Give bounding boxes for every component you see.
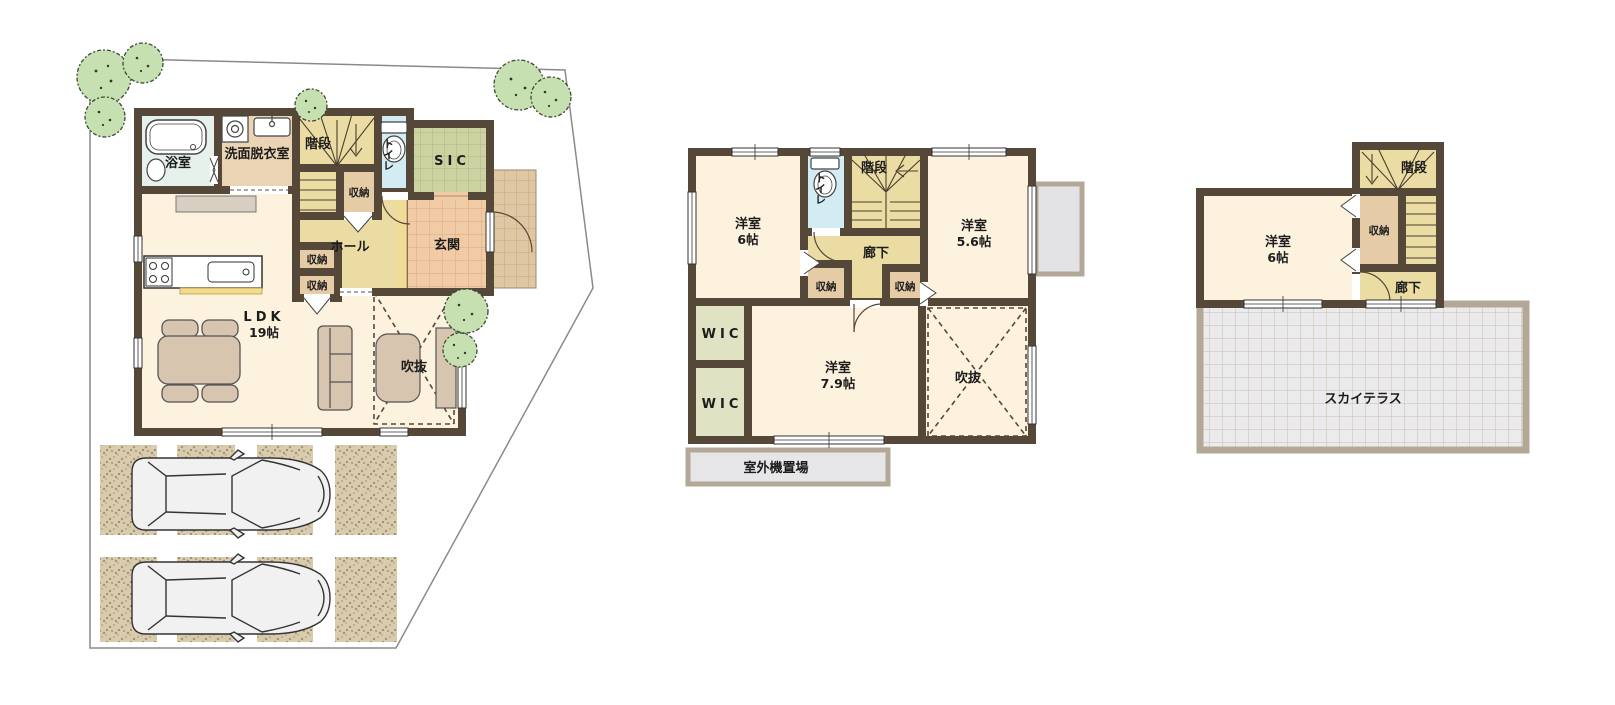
label-stairs-3f: 階段 [1401, 160, 1427, 176]
label-toilet-1f: トイレ [382, 138, 395, 171]
label-room-3f-size: 6帖 [1267, 250, 1289, 265]
label-room-2f-a-size: 6帖 [737, 232, 759, 247]
car-1 [132, 450, 330, 538]
entrance-step [397, 200, 407, 288]
label-outdoor-unit: 室外機置場 [743, 460, 808, 476]
label-storage-3f: 収納 [1369, 224, 1390, 237]
label-storage-1f-c: 収納 [307, 279, 328, 292]
label-room-2f-c-size: 7.9帖 [821, 376, 856, 391]
label-room-2f-a: 洋室 [735, 216, 761, 232]
label-room-2f-c: 洋室 [825, 360, 851, 376]
room-stairs-3f-top [1356, 146, 1440, 192]
label-wic-a: WIC [702, 327, 743, 342]
bath-folding-door-icon [210, 156, 218, 184]
label-room-2f-b-size: 5.6帖 [957, 234, 992, 249]
label-washroom: 洗面脱衣室 [224, 146, 289, 162]
label-stairs-2f: 階段 [861, 160, 887, 176]
kitchen-cupboard [176, 196, 256, 212]
label-ldk: LDK [243, 310, 284, 325]
label-storage-1f-b: 収納 [307, 253, 328, 266]
label-sic: SIC [434, 154, 470, 169]
site-plan: 浴室 洗面脱衣室 階段 収納 トイレ SIC 玄関 ホール 収納 収納 LDK … [77, 43, 593, 648]
room-stairs-1f-lower [296, 168, 340, 216]
balcony-box [1036, 184, 1082, 274]
label-corridor-2f: 廊下 [863, 245, 889, 261]
label-ldk-size: 19帖 [249, 325, 279, 340]
label-void-1f: 吹抜 [401, 359, 428, 375]
kitchen-counter [144, 256, 262, 294]
label-bath: 浴室 [165, 155, 191, 171]
label-room-2f-b: 洋室 [961, 218, 987, 234]
floor2-plan: 洋室 6帖 トイレ 階段 洋室 5.6帖 廊下 収納 収納 WIC WIC 洋室… [688, 144, 1082, 484]
label-entrance: 玄関 [434, 237, 460, 253]
floorplan-svg: 浴室 洗面脱衣室 階段 収納 トイレ SIC 玄関 ホール 収納 収納 LDK … [0, 0, 1615, 705]
sofa [318, 326, 352, 410]
label-sky-terrace: スカイテラス [1324, 392, 1401, 407]
label-storage-1f-a: 収納 [349, 186, 370, 199]
car-2 [132, 554, 330, 642]
floor3-plan: 階段 収納 洋室 6帖 廊下 スカイテラス [1200, 146, 1526, 450]
sky-terrace [1200, 304, 1526, 450]
label-room-3f: 洋室 [1265, 234, 1291, 250]
label-hall: ホール [330, 240, 369, 255]
label-wic-b: WIC [702, 397, 743, 412]
label-storage-2f-a: 収納 [816, 280, 837, 293]
washing-machine-icon [222, 116, 248, 142]
entrance-porch [490, 170, 536, 288]
floorplan-canvas: 浴室 洗面脱衣室 階段 収納 トイレ SIC 玄関 ホール 収納 収納 LDK … [0, 0, 1615, 705]
label-stairs-1f: 階段 [305, 136, 331, 152]
label-corridor-3f: 廊下 [1395, 280, 1421, 296]
label-toilet-2f: トイレ [814, 172, 827, 205]
label-void-2f: 吹抜 [955, 370, 982, 386]
label-storage-2f-b: 収納 [895, 280, 916, 293]
